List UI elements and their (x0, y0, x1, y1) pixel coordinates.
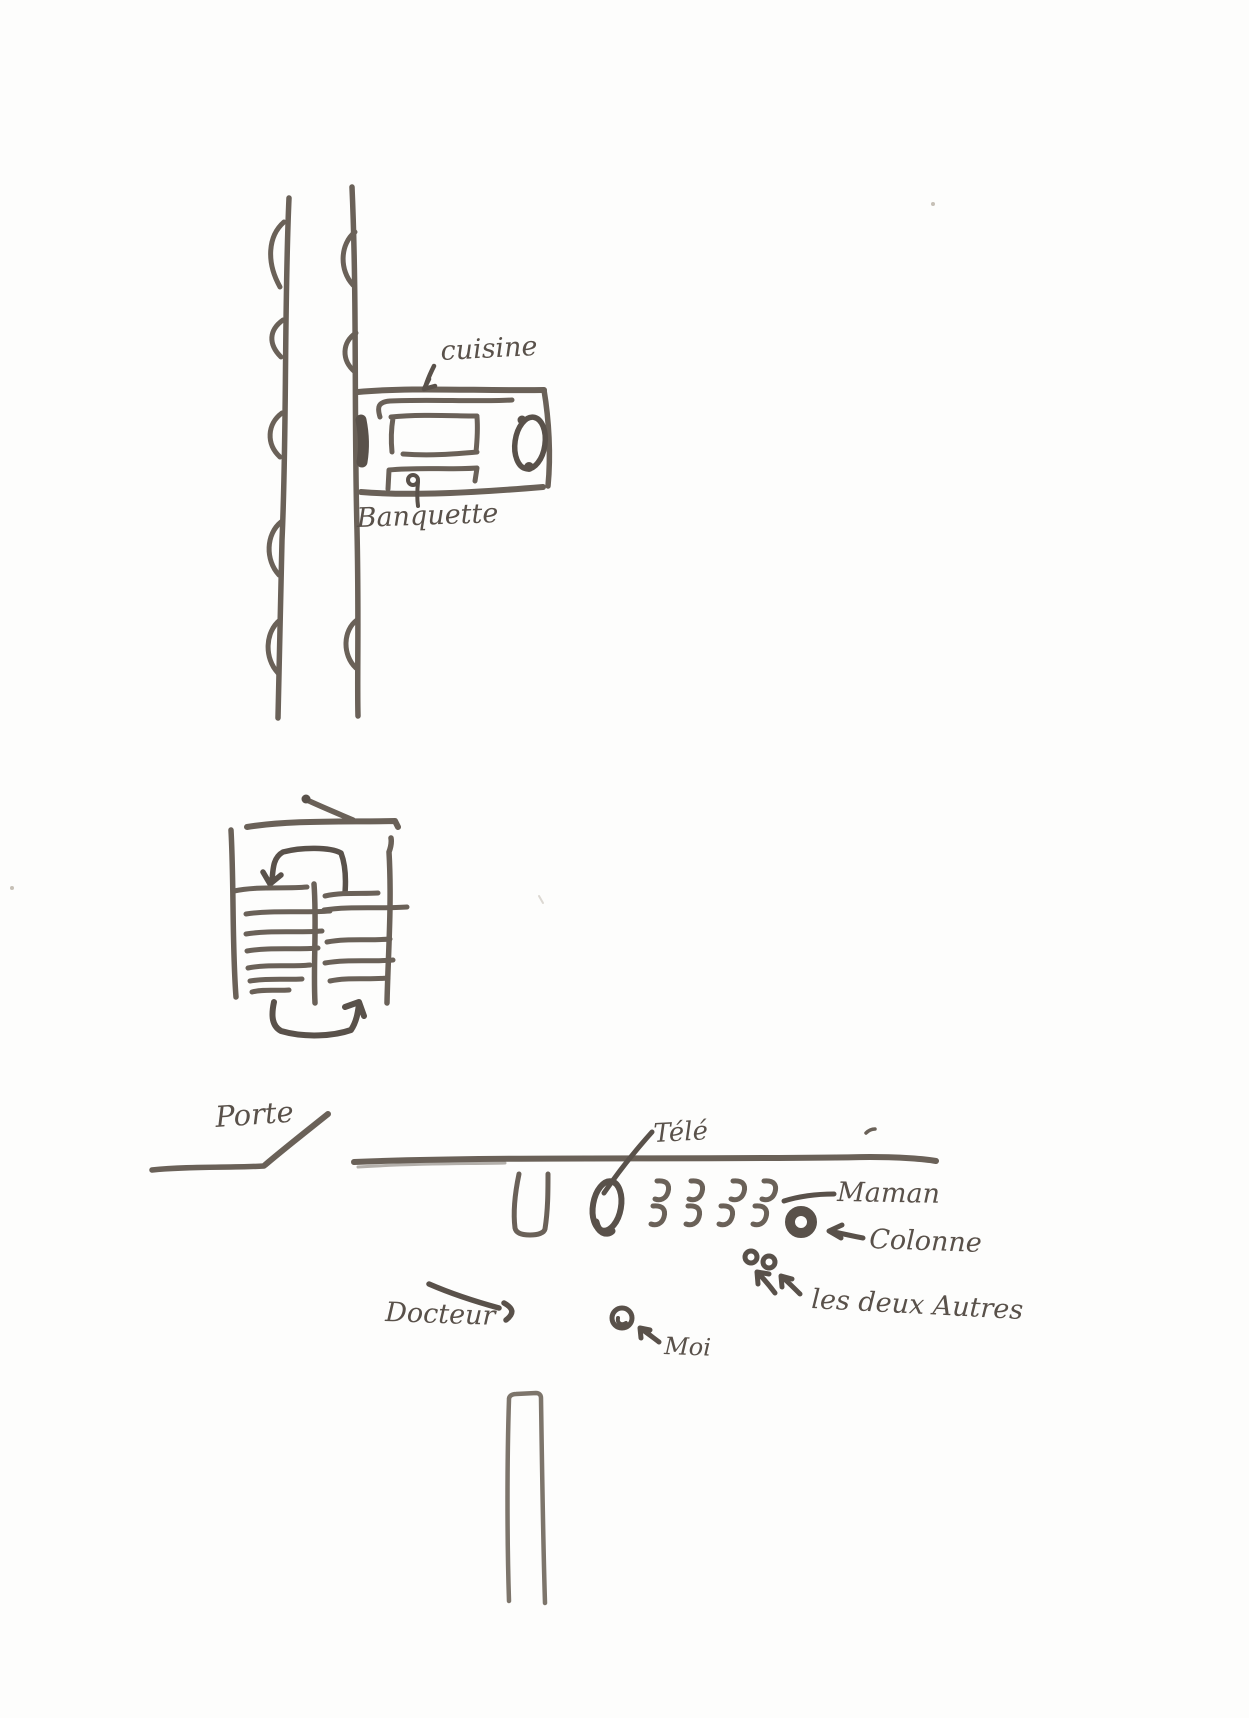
wall-left-segment (152, 1166, 264, 1170)
colonne-label: Colonne (869, 1224, 983, 1259)
staircase-door-diagonal (307, 800, 353, 820)
moi-label: Moi (663, 1332, 712, 1362)
stair-tread (234, 887, 307, 891)
banquette-seat (388, 468, 477, 489)
colonne-circle (790, 1211, 812, 1233)
paper-speck (539, 896, 543, 903)
les-deux-autres-label: les deux Autres (811, 1284, 1024, 1326)
corridor-right-wall (352, 187, 358, 716)
maman-label: Maman (836, 1177, 940, 1210)
chair-mark (719, 1206, 733, 1225)
staircase-divider (314, 884, 315, 1003)
sketch-drawing: cuisine Banquette Porte (0, 0, 1249, 1718)
chair-mark (753, 1206, 767, 1225)
stair-tread (246, 911, 330, 914)
chair-mark (731, 1181, 745, 1200)
chair-mark (655, 1181, 669, 1200)
paper-specks (10, 202, 935, 903)
chair-mark (686, 1206, 700, 1225)
stair-tread (330, 978, 388, 981)
wall-pillar-u-shape (514, 1174, 548, 1235)
moi-circle-detail (618, 1318, 626, 1324)
staircase-door-knob (302, 795, 311, 804)
kitchen-room (358, 389, 549, 493)
bottom-column (508, 1393, 546, 1603)
main-wall (354, 1157, 936, 1162)
stair-tread (325, 960, 393, 963)
corridor (268, 187, 363, 718)
chair-mark (762, 1181, 776, 1200)
kitchen-table (391, 415, 477, 454)
door-swing-mark (271, 222, 284, 287)
stair-tread (246, 931, 322, 934)
paper-speck (931, 202, 935, 206)
tick-mark (866, 1129, 875, 1133)
les-deux-autres-arrow (757, 1272, 775, 1293)
other-person-circle (745, 1251, 757, 1263)
person-oval-detail (518, 416, 527, 425)
banquette-label: Banquette (355, 498, 499, 534)
kitchen-labels: cuisine Banquette (355, 331, 538, 534)
moi-arrow (640, 1328, 659, 1342)
stair-tread (250, 979, 302, 981)
bottom-column-outline (508, 1393, 546, 1603)
stair-tread (248, 965, 310, 968)
stair-tread (327, 939, 390, 942)
porte-label: Porte (213, 1095, 295, 1134)
maman-leader-line (784, 1194, 834, 1201)
stair-tread (324, 907, 407, 910)
person-oval-detail (524, 462, 534, 472)
tele-label: Télé (653, 1116, 709, 1149)
scanned-sketch-page: cuisine Banquette Porte (0, 0, 1249, 1718)
cuisine-arrow (424, 366, 435, 389)
room-objects: Télé Maman Colonne les deux Autres Docte… (384, 1116, 1024, 1361)
door-swing-mark (270, 413, 282, 457)
stairs-uturn-arrow (272, 1002, 364, 1035)
colonne-arrow (829, 1225, 863, 1238)
porte-and-wall: Porte (152, 1095, 936, 1170)
stair-tread (247, 948, 318, 951)
chair-mark (651, 1206, 665, 1225)
stair-tread (252, 990, 289, 992)
chair-mark (689, 1181, 703, 1200)
tele-leader-line (604, 1132, 652, 1193)
kitchen-doorway-mark (361, 420, 363, 462)
paper-speck (10, 886, 14, 890)
stair-tread (325, 893, 378, 896)
kitchen-top-wall (358, 389, 544, 392)
staircase (231, 795, 407, 1036)
banquette-leader-line (417, 482, 418, 506)
les-deux-autres-arrow (781, 1276, 800, 1294)
other-person-circle (763, 1256, 775, 1268)
door-swing-mark (272, 320, 283, 357)
staircase-left-wall (231, 830, 236, 997)
cuisine-label: cuisine (440, 331, 539, 367)
staircase-top-wall (247, 821, 398, 827)
